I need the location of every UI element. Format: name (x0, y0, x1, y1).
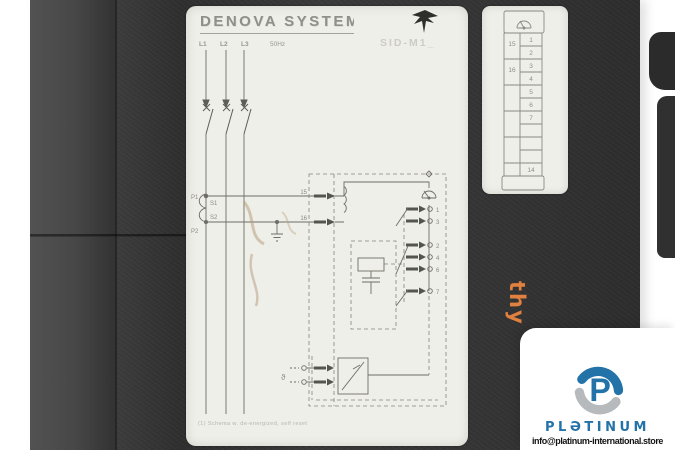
terminal-grid-base (502, 176, 544, 190)
seller-watermark-card: P PLƏTINUM info@platinum-international.s… (520, 328, 675, 450)
thermistor-plug-contacts (314, 365, 334, 386)
output-terminal-number: 1 (436, 208, 440, 214)
ct-s2-label: S2 (210, 215, 218, 221)
wiring-diagram: P1 S1 S2 P2 15 16 (186, 6, 468, 446)
input-terminal-16-label: 16 (300, 216, 307, 222)
frequency-label: 50Hz (270, 41, 285, 48)
product-photo: P1 S1 S2 P2 15 16 (0, 0, 675, 450)
dial-icon (517, 21, 531, 29)
output-terminal-number: 3 (436, 220, 440, 226)
terminal-grid (502, 33, 544, 190)
housing-brand-text: thy (505, 281, 529, 326)
strip-cell-2: 2 (529, 50, 533, 57)
logo-letter-p: P (589, 372, 611, 408)
watermark-brand-text: PLƏTINUM (545, 420, 650, 435)
output-plug-contacts (406, 206, 426, 295)
brand-title: DENOVA SYSTEM (200, 13, 354, 34)
device-groove (30, 234, 188, 237)
phase-label-l2: L2 (220, 41, 228, 48)
breaker-symbol (203, 100, 251, 134)
strip-cell-4: 4 (529, 76, 533, 83)
input-terminal-15-label: 15 (300, 190, 307, 196)
wiring-diagram-label: P1 S1 S2 P2 15 16 (186, 6, 468, 446)
terminal-numbering-label: 15 16 1 2 3 4 5 6 7 14 (482, 6, 568, 194)
setting-dial-symbol (422, 191, 436, 291)
terminal-strip-diagram: 15 16 1 2 3 4 5 6 7 14 (482, 6, 568, 194)
ground-symbol (271, 220, 283, 241)
watermark-email-text: info@platinum-international.store (532, 436, 663, 446)
right-edge-part-upper (649, 32, 675, 90)
output-terminal-number: 7 (436, 290, 440, 296)
strip-cell-14: 14 (527, 167, 535, 174)
level-detector-block (338, 358, 429, 394)
electronics-block (358, 258, 384, 294)
phase-label-l1: L1 (199, 41, 207, 48)
input-plug-contacts (314, 193, 335, 226)
phase-label-l3: L3 (241, 41, 249, 48)
thermistor-symbol: ϑ (281, 373, 286, 382)
output-terminal-number: 2 (436, 244, 440, 250)
brand-bird-icon (410, 9, 440, 35)
measuring-coil (335, 171, 432, 222)
strip-cell-15: 15 (508, 41, 516, 48)
ct-p2-label: P2 (191, 229, 199, 235)
output-terminal-number: 6 (436, 268, 440, 274)
label-scratches (244, 202, 296, 306)
strip-cell-3: 3 (529, 63, 533, 70)
model-number: SID-M1_ (380, 37, 435, 49)
strip-cell-1: 1 (529, 37, 533, 44)
platinum-logo: P (565, 357, 631, 419)
dial-box (504, 11, 544, 33)
strip-cell-5: 5 (529, 89, 533, 96)
thermistor-input (290, 366, 314, 385)
strip-cell-6: 6 (529, 102, 533, 109)
label-footnote: (1) Schema w. de-energized, self reset (198, 421, 307, 427)
ct-p1-label: P1 (191, 195, 199, 201)
output-terminal-number: 4 (436, 256, 440, 262)
strip-cell-16: 16 (508, 67, 516, 74)
right-edge-part-lower (657, 96, 675, 258)
ct-s1-label: S1 (210, 201, 218, 207)
strip-cell-7: 7 (529, 115, 533, 122)
device-side-fin (30, 0, 117, 450)
